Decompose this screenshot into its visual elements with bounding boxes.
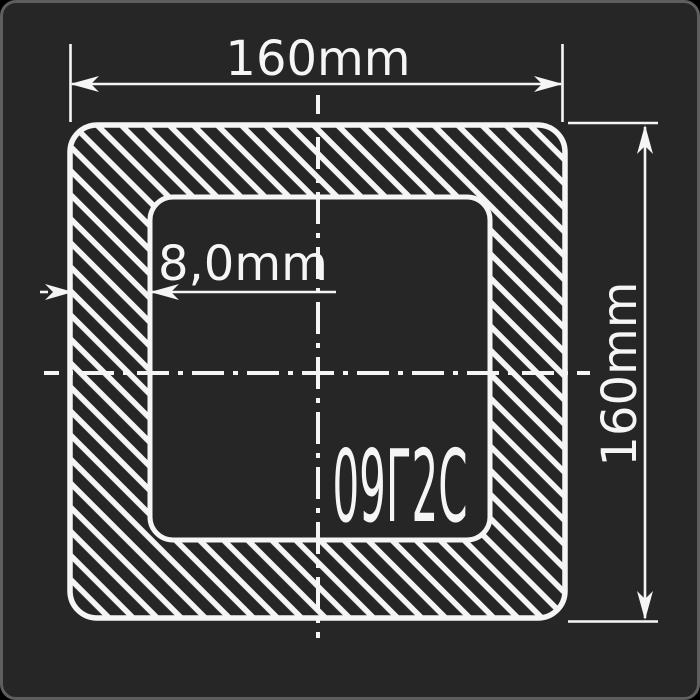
width-dimension-label: 160mm [225,31,410,87]
wall-thickness-label: 8,0mm [158,236,328,292]
steel-grade-label: 09Г2С [332,430,467,546]
tube-cross-section-drawing: 160mm 160mm 8,0mm 09Г2С [3,3,697,697]
drawing-card: 160mm 160mm 8,0mm 09Г2С [0,0,700,700]
height-dimension-label: 160mm [592,281,648,466]
